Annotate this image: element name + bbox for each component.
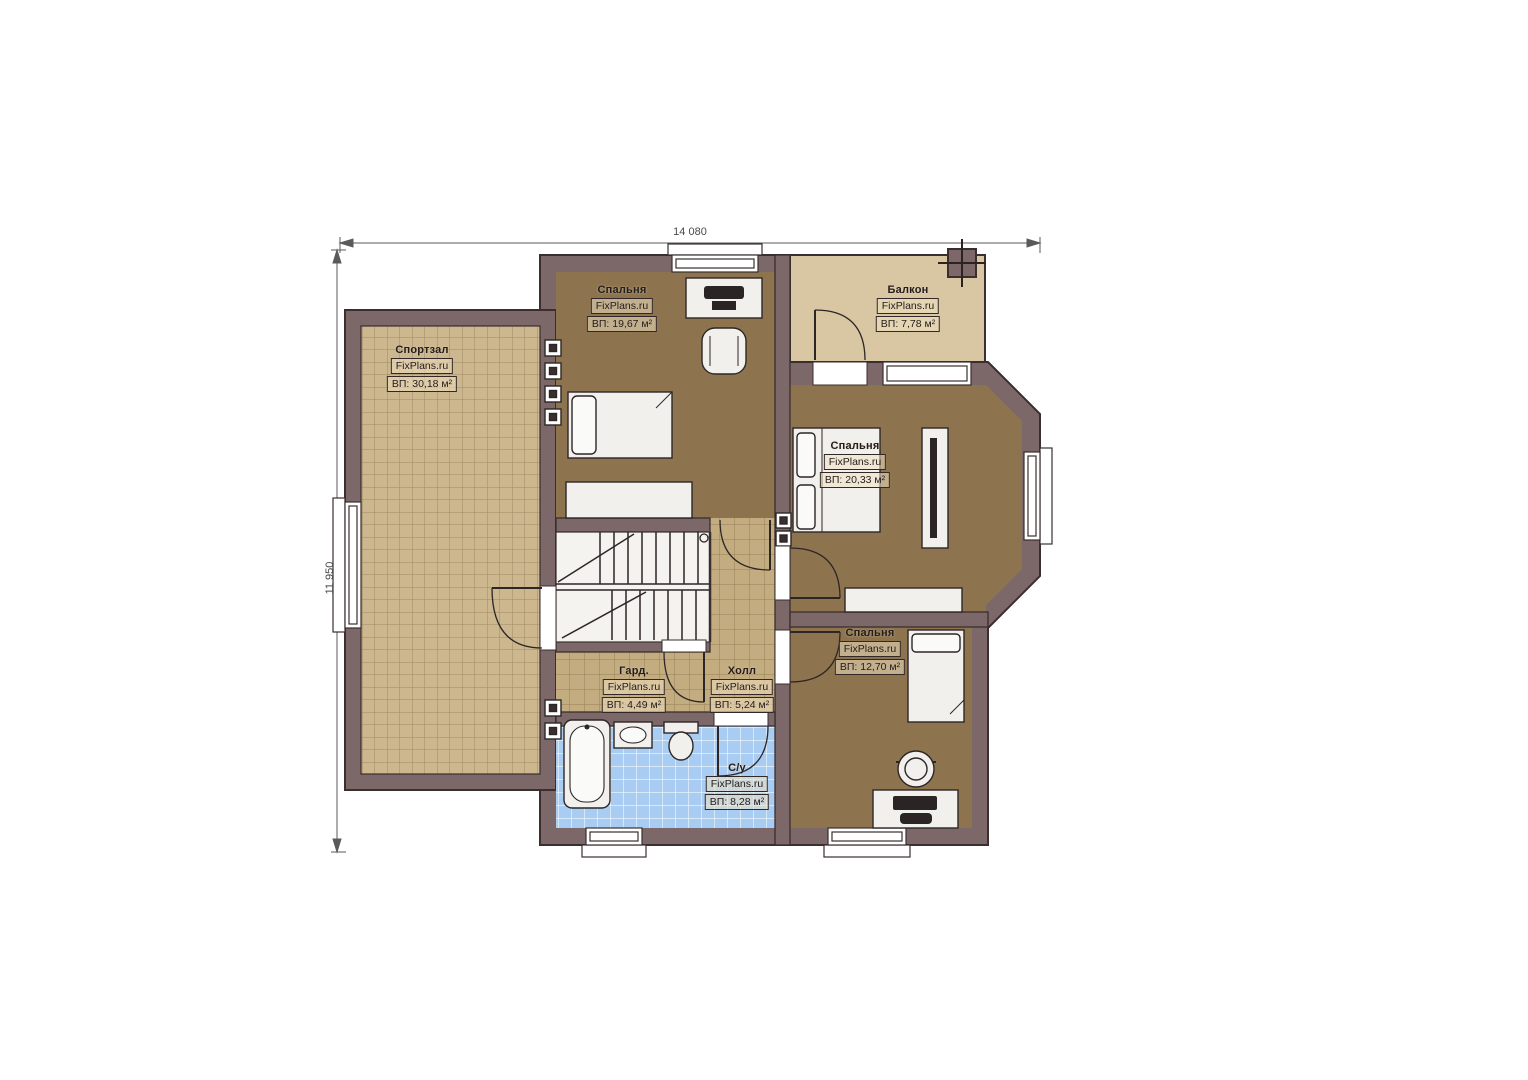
- pillow: [912, 634, 960, 652]
- hall-floor: [710, 518, 775, 712]
- office-chair: [702, 328, 746, 374]
- window-sill: [824, 845, 910, 857]
- staircase: [556, 532, 710, 642]
- wall-bedrooms-divider: [790, 612, 988, 627]
- floor-plan-drawing: [0, 0, 1528, 1080]
- wardrobe: [922, 428, 948, 548]
- bed-double: [793, 428, 880, 532]
- bed-single: [568, 392, 672, 458]
- door-opening-balcony: [813, 362, 867, 385]
- window-sill: [668, 244, 762, 255]
- keyboard-icon: [712, 301, 736, 310]
- sink: [614, 722, 652, 748]
- window-sill: [1040, 448, 1052, 544]
- door-opening-gym: [540, 586, 556, 650]
- door-opening-bedroom-bottom: [775, 630, 790, 684]
- gym-floor: [361, 326, 540, 774]
- dresser: [566, 482, 692, 518]
- pillow: [797, 485, 815, 529]
- arrow-right-icon: [1027, 239, 1040, 247]
- dresser: [845, 588, 962, 612]
- window-sill: [582, 845, 646, 857]
- window-top: [672, 255, 758, 272]
- faucet-icon: [585, 725, 590, 730]
- computer-icon: [704, 286, 744, 299]
- floor-plan-page: 14 080 11 950 Спортзал FixPlans.ru ВП: 3…: [0, 0, 1528, 1080]
- dimension-label-height: 11 950: [324, 562, 336, 595]
- computer-icon: [893, 796, 937, 810]
- door-opening-wardrobe: [662, 640, 706, 652]
- dimension-label-width: 14 080: [673, 226, 707, 238]
- railing-post: [700, 534, 708, 542]
- wall-stairs-top: [556, 518, 710, 532]
- door-opening-bedroom-right: [775, 546, 790, 600]
- wardrobe-room-floor: [556, 652, 710, 712]
- window-bay: [1024, 452, 1040, 540]
- arrow-left-icon: [340, 239, 353, 247]
- window-bedroom-bottom: [828, 828, 906, 845]
- pillow: [572, 396, 596, 454]
- pillow: [797, 433, 815, 477]
- bathtub: [564, 720, 610, 808]
- arrow-down-icon: [333, 839, 341, 852]
- door-opening-bathroom: [714, 712, 768, 726]
- window-gym: [345, 502, 361, 628]
- bed-single: [908, 630, 964, 722]
- window-bathroom: [586, 828, 642, 845]
- chair: [900, 813, 932, 824]
